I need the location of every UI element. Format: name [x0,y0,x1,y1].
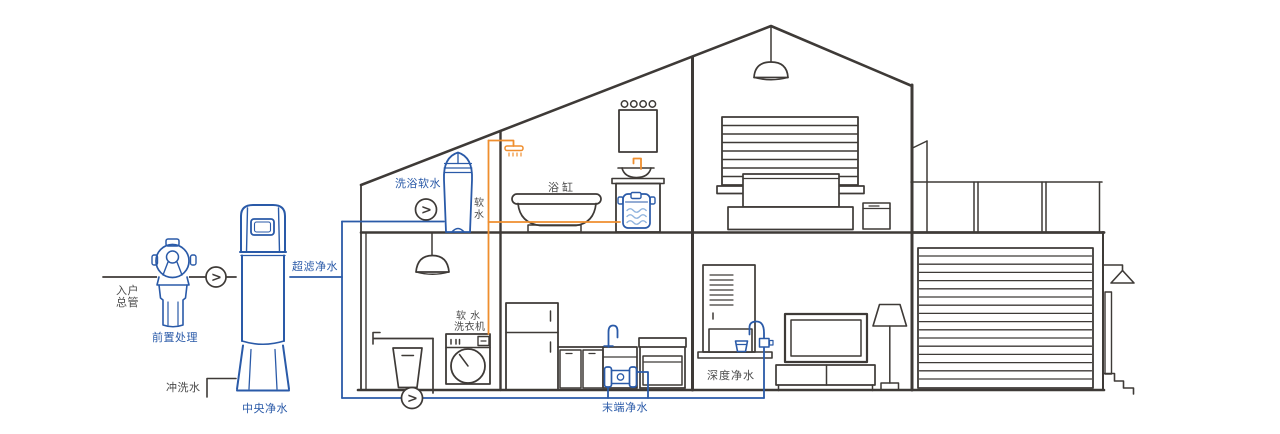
dispenser-vent-slats [710,275,733,305]
floor-lamp [873,305,907,391]
flow-pump-second-floor: > [416,199,437,220]
label-flush-water: 冲洗水 [166,380,201,394]
kitchen-faucet [604,326,618,348]
garage-door-slats [920,256,1092,379]
bathtub [512,194,601,232]
orange-pipeline [489,141,642,335]
ro-filter-device [605,367,637,387]
bed [728,174,853,230]
blue-pipeline [290,222,773,399]
label-terminal-purifier: 末端净水 [602,400,648,414]
label-soft-water-1: 软 [474,196,485,209]
outdoor-wall-lamp [1103,265,1134,283]
label-entry-main-2: 总管 [116,295,139,309]
label-washer-1: 软 水 [456,309,481,322]
label-pre-treatment: 前置处理 [152,330,198,344]
flush-water-pipe [207,379,236,398]
laundry-counter [373,333,433,394]
label-soft-water-2: 水 [474,209,485,221]
label-ultrafiltration: 超滤净水 [292,259,338,273]
central-purifier-device [237,205,289,392]
ro-cap-right [630,367,637,387]
downspout-pipe [1105,292,1112,374]
wall-lamp-shade [1111,271,1134,284]
garage [911,141,1134,394]
tv-stand [776,365,875,391]
flow-pump-entry: > [206,267,226,287]
flow-arrow-icon: > [211,271,222,286]
label-entry-main-1: 入户 [116,283,139,297]
outdoor-steps [1103,374,1134,395]
label-bath-softener: 洗浴软水 [395,176,441,190]
diagram-stage: > > > 入户 总管 前置处理 中央净水 超滤净水 冲洗水 洗浴软水 软 水 … [0,0,1280,434]
dispenser-faucet [750,322,774,399]
refrigerator [506,303,558,390]
laundry-basket [393,348,422,388]
living-room [776,305,907,391]
bedroom [717,26,890,230]
ro-center-gauge [617,374,623,380]
mirror [619,110,657,152]
kitchen-cabinets [558,347,604,388]
flow-pump-ground-floor: > [402,388,423,409]
house-water-diagram: > > > 入户 总管 前置处理 中央净水 超滤净水 冲洗水 洗浴软水 软 水 … [0,0,1280,434]
dispenser-counter [698,352,772,358]
oven [639,338,686,388]
nightstand [863,203,890,229]
dispenser-filter-fitting [760,339,770,348]
deck-rail-posts [912,141,1100,232]
ro-cap-left [605,367,612,387]
flow-arrow-icon: > [421,203,432,218]
bath-softener-device [444,153,472,233]
label-central-purifier: 中央净水 [242,401,288,415]
washing-machine [446,334,490,384]
ceiling-pendant-lamp [416,233,449,274]
shower-head [505,146,523,156]
wall-lamp-bracket [1103,265,1123,271]
sink-bowl [622,168,651,178]
mirror-lights [621,101,655,107]
pre-treatment-device [152,239,196,327]
under-sink-heater-device [618,193,655,229]
bedroom-pendant-lamp [754,26,788,80]
tv [785,314,867,362]
label-deep-purifier: 深度净水 [707,368,755,382]
label-washer-2: 洗衣机 [454,320,486,333]
kitchen [506,303,686,390]
flow-arrow-icon: > [407,392,418,407]
garage-door [918,248,1093,388]
bed-base [728,207,853,230]
label-bathtub: 浴缸 [548,180,576,194]
